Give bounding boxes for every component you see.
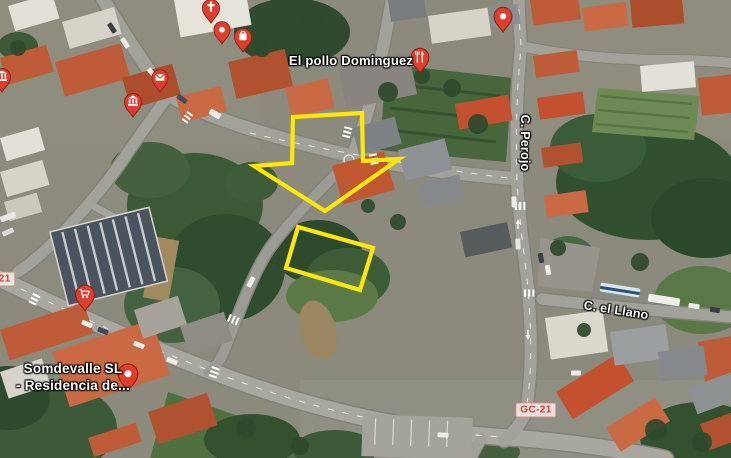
c-perojo-label: C. Perojo [516,115,532,172]
dot-icon [219,27,225,33]
pin-museum-left[interactable] [0,69,11,93]
el-pollo-dominguez-label[interactable]: El pollo Dominguez [289,53,413,69]
pin-church[interactable] [203,0,220,23]
highlight-rectangle-annotation [286,227,373,290]
pin-supermarket[interactable] [76,285,95,311]
pin-balloon [494,7,512,32]
highlight-arrow-annotation [254,113,399,211]
pin-museum-center[interactable] [125,94,142,118]
somdevalle-label[interactable]: Somdevalle SL - Residencia de... [16,361,130,395]
pin-place-topright[interactable] [494,7,512,32]
pin-balloon [76,285,95,311]
pin-place-top[interactable] [214,22,230,44]
dot-icon [500,13,506,19]
pin-shopping[interactable] [235,29,252,53]
pin-post-office[interactable] [152,70,168,92]
pin-balloon [152,70,168,92]
satellite-map[interactable]: El pollo DominguezSomdevalle SL - Reside… [0,0,731,458]
envelope-icon [156,74,165,81]
pin-restaurant-el-pollo[interactable] [411,48,429,73]
pin-balloon [214,22,230,44]
pin-balloon [411,48,429,73]
